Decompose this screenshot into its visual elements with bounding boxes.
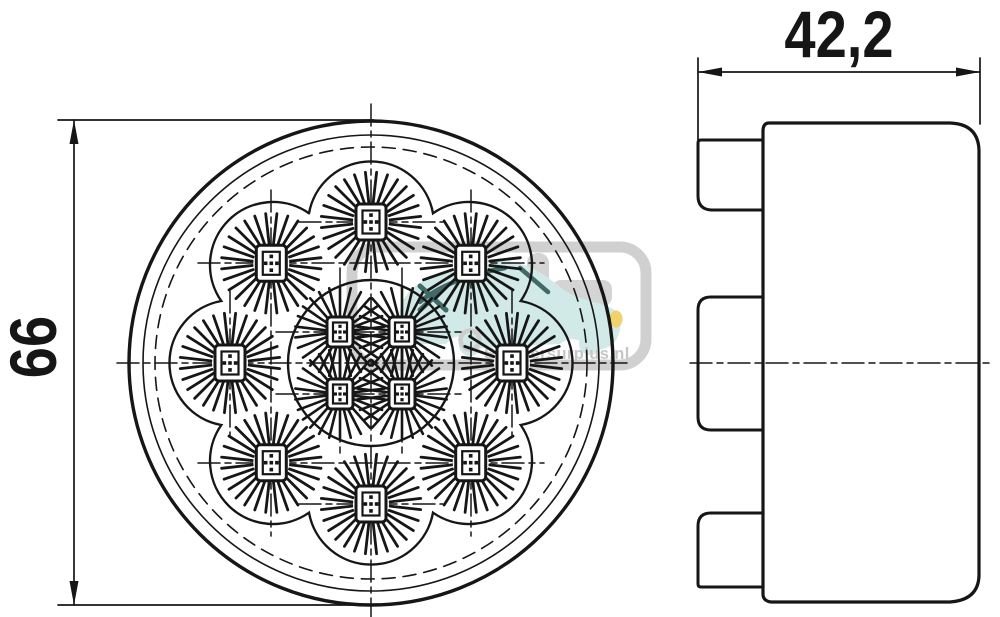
led-spoke — [506, 313, 509, 344]
led-chip-dot — [269, 454, 273, 458]
led-chip-dot — [228, 361, 232, 365]
led-spoke — [266, 282, 269, 313]
led-chip-dot — [405, 392, 408, 395]
arrowhead-left-icon — [698, 68, 722, 77]
led-spoke — [390, 506, 421, 509]
led-spoke — [224, 313, 227, 344]
led-chip-dot — [338, 392, 341, 395]
led-spoke — [295, 389, 325, 393]
led-spoke — [373, 454, 376, 485]
led-spoke — [506, 382, 509, 413]
led-spoke — [298, 399, 326, 410]
led-chip-dot — [469, 454, 473, 458]
mounting-tab-bottom — [698, 513, 763, 587]
led-chip-dot — [510, 368, 514, 372]
led-spoke — [273, 482, 276, 513]
arrowhead-right-icon — [956, 68, 980, 77]
arrowhead-down-icon — [70, 581, 79, 605]
led-spoke — [465, 282, 468, 313]
led-chip-dot — [405, 330, 408, 333]
led-spoke — [321, 216, 352, 219]
led-chip-dot — [475, 461, 479, 465]
led-chip-dot — [338, 325, 341, 328]
led-spoke — [416, 337, 444, 348]
led-spoke — [490, 265, 521, 268]
led-spoke — [365, 454, 368, 485]
led-spoke — [360, 378, 388, 389]
led-chip-dot — [505, 361, 509, 365]
led-spoke — [360, 316, 388, 327]
led-spoke — [462, 365, 493, 368]
led-spoke — [365, 523, 368, 554]
led-chip-dot — [364, 502, 368, 506]
led-spoke — [490, 258, 521, 261]
led-spoke — [273, 214, 276, 245]
led-spoke — [222, 457, 253, 460]
led-spoke — [417, 389, 447, 393]
led-chip-dot — [369, 213, 373, 217]
led-chip-dot — [369, 509, 373, 513]
led-spoke — [373, 523, 376, 554]
led-spoke — [266, 482, 269, 513]
led-spoke — [365, 172, 368, 203]
led-spoke — [360, 399, 388, 410]
depth-dimension: 42,2 — [698, 0, 980, 140]
led-chip-dot — [269, 255, 273, 259]
lamp-technical-drawing: 66 42,2 — [0, 0, 1000, 617]
led-spoke — [290, 258, 321, 261]
led-chip-dot — [269, 461, 273, 465]
led-chip-dot — [469, 255, 473, 259]
led-spoke — [360, 337, 388, 348]
led-spoke — [295, 334, 325, 338]
led-spoke — [298, 337, 326, 348]
led-chip-dot — [275, 261, 279, 265]
led-chip-dot — [343, 392, 346, 395]
led-spoke — [224, 382, 227, 413]
led-chip-dot — [264, 261, 268, 265]
led-spoke — [416, 378, 444, 389]
led-spoke — [180, 357, 211, 360]
led-chip-dot — [375, 502, 379, 506]
led-spoke — [266, 413, 269, 444]
led-chip-dot — [228, 354, 232, 358]
led-spoke — [290, 457, 321, 460]
led-spoke — [354, 316, 382, 327]
led-chip-dot — [338, 398, 341, 401]
led-spoke — [365, 241, 368, 272]
led-chip-dot — [228, 368, 232, 372]
led-spoke — [321, 506, 352, 509]
led-spoke — [473, 282, 476, 313]
side-view-lamp-profile — [690, 123, 994, 602]
led-spoke — [465, 482, 468, 513]
height-dimension-label: 66 — [0, 316, 70, 378]
led-spoke — [290, 465, 321, 468]
led-spoke — [295, 327, 325, 331]
led-chip-dot — [400, 387, 403, 390]
led-spoke — [273, 413, 276, 444]
led-spoke — [531, 365, 562, 368]
led-spoke — [298, 378, 326, 389]
led-chip-dot — [469, 468, 473, 472]
led-chip-dot — [338, 336, 341, 339]
led-spoke — [514, 382, 517, 413]
led-spoke — [473, 482, 476, 513]
led-chip-dot — [510, 354, 514, 358]
led-spoke — [421, 258, 452, 261]
arrowhead-up-icon — [70, 120, 79, 144]
led-chip-dot — [400, 325, 403, 328]
led-spoke — [416, 316, 444, 327]
led-spoke — [354, 337, 382, 348]
led-spoke — [473, 413, 476, 444]
led-chip-dot — [264, 461, 268, 465]
led-chip-dot — [475, 261, 479, 265]
led-chip-dot — [369, 220, 373, 224]
led-chip-dot — [469, 461, 473, 465]
led-spoke — [421, 457, 452, 460]
led-spoke — [321, 498, 352, 501]
led-chip-dot — [223, 361, 227, 365]
led-spoke — [462, 357, 493, 360]
led-chip-dot — [463, 261, 467, 265]
led-chip-dot — [369, 495, 373, 499]
led-chip-dot — [269, 261, 273, 265]
led-spoke — [222, 258, 253, 261]
led-chip-dot — [269, 468, 273, 472]
led-chip-dot — [343, 330, 346, 333]
led-chip-dot — [400, 392, 403, 395]
led-chip-dot — [396, 330, 399, 333]
led-spoke — [473, 214, 476, 245]
led-chip-dot — [469, 261, 473, 265]
led-spoke — [421, 465, 452, 468]
led-spoke — [222, 465, 253, 468]
led-spoke — [295, 396, 325, 400]
led-spoke — [222, 265, 253, 268]
led-spoke — [514, 313, 517, 344]
led-chip-dot — [510, 361, 514, 365]
led-chip-dot — [334, 330, 337, 333]
led-chip-dot — [400, 330, 403, 333]
led-chip-dot — [338, 330, 341, 333]
led-spoke — [354, 399, 382, 410]
led-chip-dot — [369, 502, 373, 506]
led-spoke — [232, 382, 235, 413]
led-spoke — [416, 399, 444, 410]
led-spoke — [290, 265, 321, 268]
depth-dimension-label: 42,2 — [784, 0, 893, 71]
led-spoke — [390, 216, 421, 219]
mounting-tab-top — [698, 140, 763, 210]
led-chip-dot — [338, 387, 341, 390]
led-spoke — [373, 241, 376, 272]
front-view-lamp-face — [117, 104, 627, 617]
led-chip-dot — [400, 398, 403, 401]
led-spoke — [354, 378, 382, 389]
led-chip-dot — [469, 268, 473, 272]
led-spoke — [531, 357, 562, 360]
led-spoke — [298, 316, 326, 327]
led-chip-dot — [463, 461, 467, 465]
led-chip-dot — [364, 220, 368, 224]
led-spoke — [180, 365, 211, 368]
led-spoke — [417, 334, 447, 338]
led-chip-dot — [400, 336, 403, 339]
led-spoke — [390, 224, 421, 227]
led-chip-dot — [334, 392, 337, 395]
led-spoke — [266, 214, 269, 245]
led-spoke — [390, 498, 421, 501]
technical-drawing-page: Sempersurplus.nl 66 — [0, 0, 1000, 617]
led-spoke — [373, 172, 376, 203]
led-spoke — [490, 457, 521, 460]
led-spoke — [273, 282, 276, 313]
led-spoke — [465, 214, 468, 245]
led-chip-dot — [269, 268, 273, 272]
led-spoke — [490, 465, 521, 468]
led-spoke — [249, 365, 280, 368]
led-spoke — [249, 357, 280, 360]
led-spoke — [465, 413, 468, 444]
led-spoke — [417, 327, 447, 331]
led-chip-dot — [375, 220, 379, 224]
led-spoke — [232, 313, 235, 344]
led-spoke — [421, 265, 452, 268]
led-spoke — [321, 224, 352, 227]
led-chip-dot — [234, 361, 238, 365]
led-chip-dot — [396, 392, 399, 395]
led-chip-dot — [275, 461, 279, 465]
led-chip-dot — [516, 361, 520, 365]
led-spoke — [417, 396, 447, 400]
led-chip-dot — [369, 227, 373, 231]
